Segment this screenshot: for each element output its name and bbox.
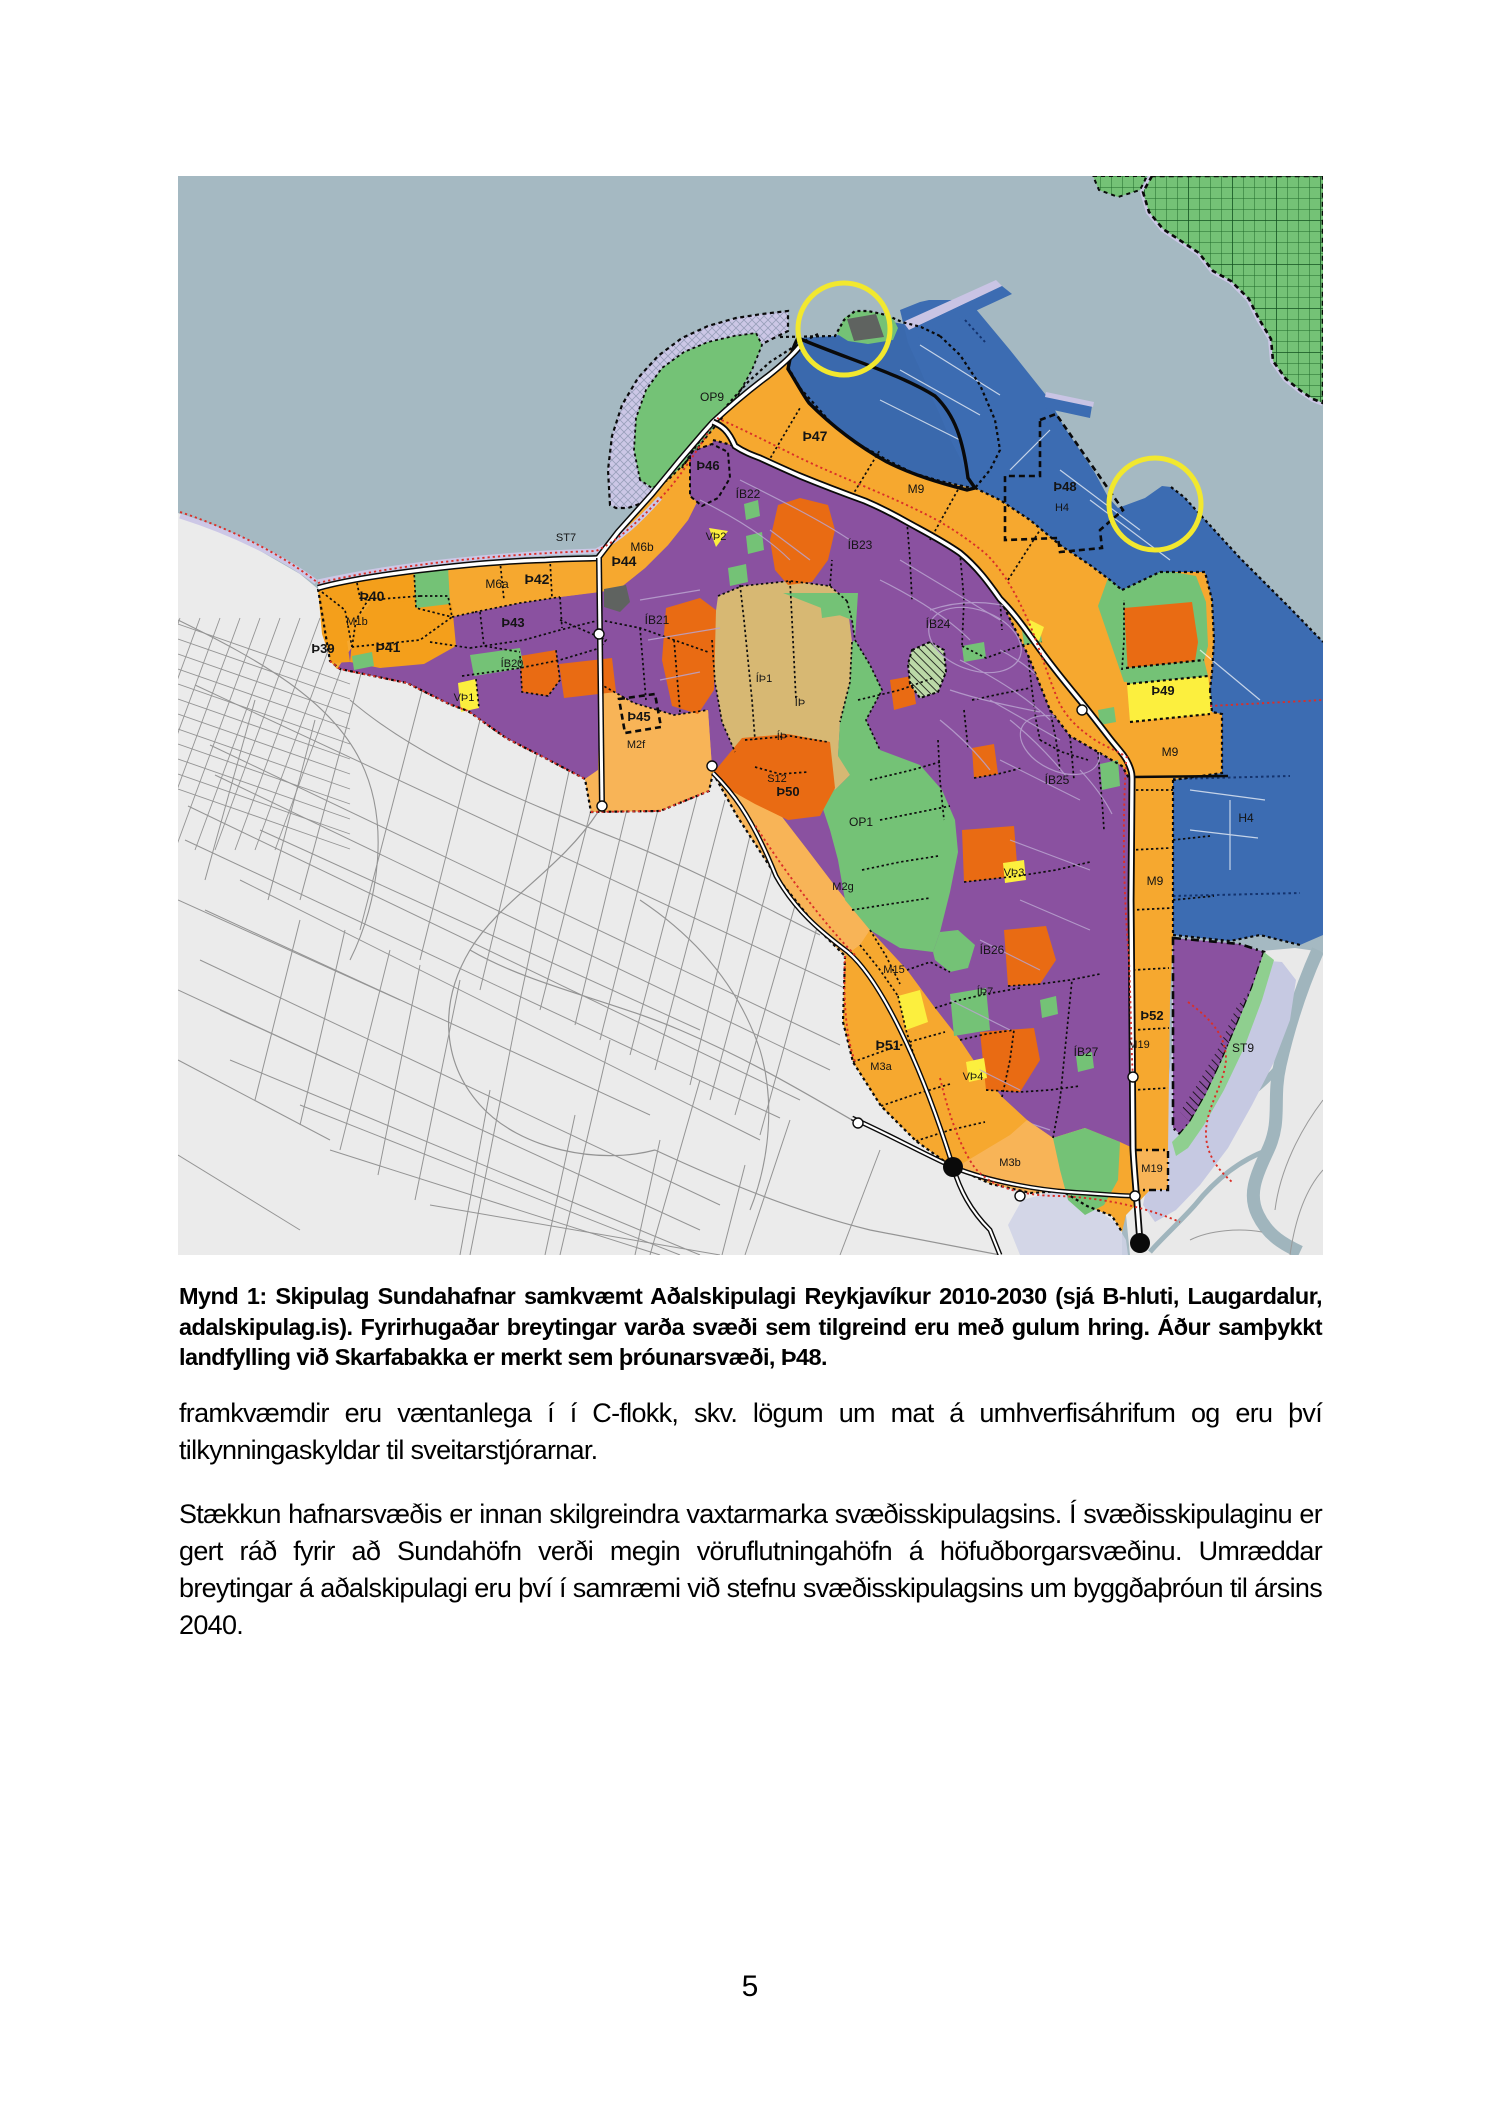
svg-text:Þ49: Þ49 bbox=[1151, 683, 1174, 698]
svg-text:ÍB24: ÍB24 bbox=[926, 616, 951, 631]
svg-text:M6b: M6b bbox=[630, 540, 654, 554]
svg-text:Þ46: Þ46 bbox=[696, 458, 719, 473]
svg-text:Þ43: Þ43 bbox=[501, 615, 524, 630]
svg-text:VÞ4: VÞ4 bbox=[963, 1071, 984, 1083]
svg-text:Þ48: Þ48 bbox=[1053, 479, 1076, 494]
svg-text:Þ39: Þ39 bbox=[311, 641, 334, 656]
svg-text:M9: M9 bbox=[1147, 874, 1164, 888]
svg-text:M1b: M1b bbox=[346, 616, 367, 628]
svg-text:M19: M19 bbox=[1141, 1163, 1162, 1175]
svg-text:ÍB23: ÍB23 bbox=[848, 537, 873, 552]
svg-text:Þ45: Þ45 bbox=[627, 709, 650, 724]
svg-text:M3a: M3a bbox=[870, 1061, 892, 1073]
svg-text:ÍB26: ÍB26 bbox=[980, 942, 1005, 957]
svg-text:ÍÞ1: ÍÞ1 bbox=[756, 672, 773, 685]
svg-text:Þ50: Þ50 bbox=[776, 784, 799, 799]
svg-text:Þ42: Þ42 bbox=[525, 571, 550, 587]
svg-text:H4: H4 bbox=[1055, 502, 1069, 514]
svg-text:M2g: M2g bbox=[832, 881, 853, 893]
svg-text:ST7: ST7 bbox=[556, 532, 576, 544]
svg-text:ST9: ST9 bbox=[1232, 1041, 1254, 1055]
svg-text:M9: M9 bbox=[1162, 745, 1179, 759]
svg-text:Þ40: Þ40 bbox=[360, 588, 385, 604]
svg-text:ÍB27: ÍB27 bbox=[1074, 1044, 1099, 1059]
svg-text:ÍB25: ÍB25 bbox=[1045, 772, 1070, 787]
svg-text:M2f: M2f bbox=[627, 739, 646, 751]
svg-text:Þ44: Þ44 bbox=[612, 553, 637, 569]
svg-text:M9: M9 bbox=[908, 482, 925, 496]
svg-text:M6a: M6a bbox=[485, 577, 509, 591]
svg-text:ÍB20: ÍB20 bbox=[501, 657, 524, 670]
svg-text:Þ47: Þ47 bbox=[803, 428, 828, 444]
svg-text:ÍB22: ÍB22 bbox=[736, 486, 761, 501]
svg-text:M19: M19 bbox=[1128, 1039, 1149, 1051]
svg-text:Þ41: Þ41 bbox=[376, 639, 401, 655]
svg-text:Þ52: Þ52 bbox=[1140, 1008, 1163, 1023]
svg-text:OP9: OP9 bbox=[700, 390, 724, 404]
svg-text:Þ51: Þ51 bbox=[876, 1037, 901, 1053]
svg-text:VÞ2: VÞ2 bbox=[706, 531, 727, 543]
svg-text:M15: M15 bbox=[883, 964, 904, 976]
svg-text:OP1: OP1 bbox=[849, 815, 873, 829]
svg-text:VÞ1: VÞ1 bbox=[454, 692, 475, 704]
svg-text:ÍB21: ÍB21 bbox=[645, 612, 670, 627]
svg-text:ÍÞ: ÍÞ bbox=[777, 730, 787, 743]
svg-text:ÍÞ7: ÍÞ7 bbox=[977, 985, 994, 998]
svg-text:ÍÞ: ÍÞ bbox=[795, 696, 805, 709]
svg-text:M3b: M3b bbox=[999, 1157, 1020, 1169]
svg-text:H4: H4 bbox=[1238, 811, 1254, 825]
svg-text:VÞ3: VÞ3 bbox=[1004, 867, 1025, 879]
